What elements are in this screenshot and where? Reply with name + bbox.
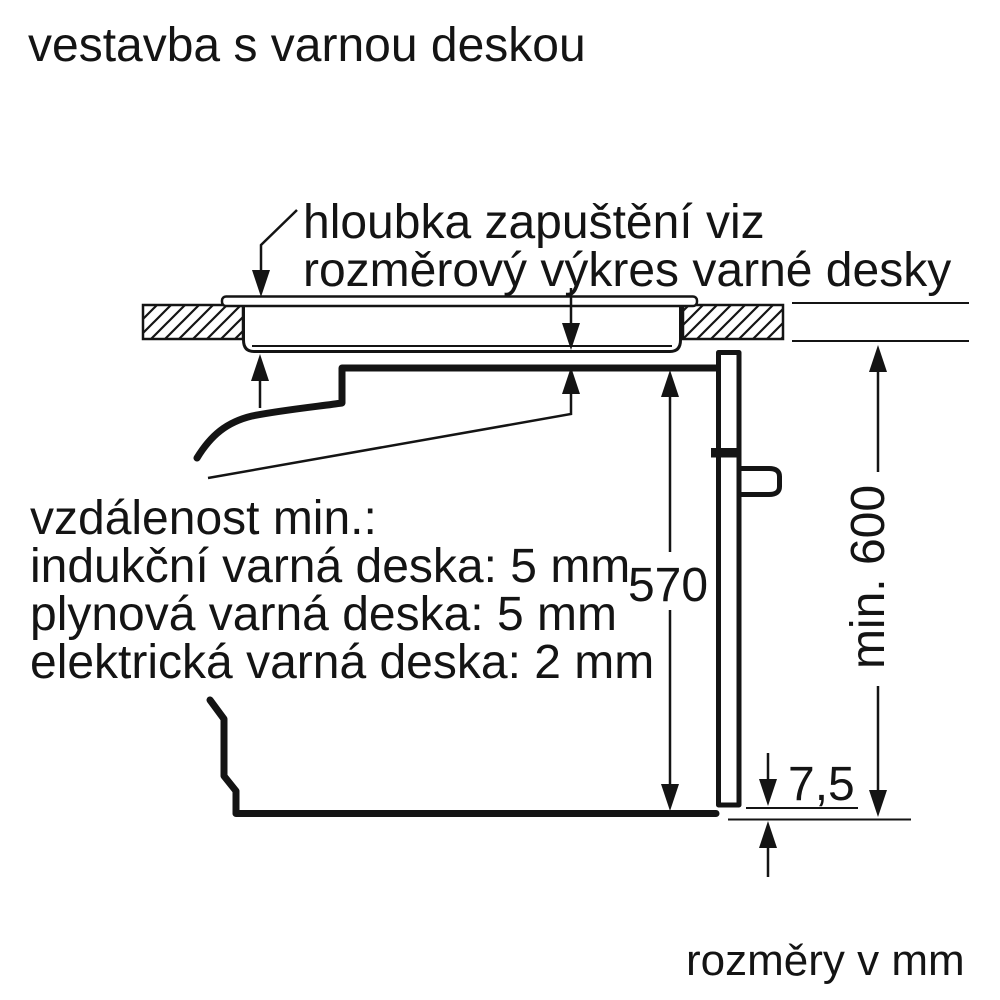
- arrow-down-icon: [661, 784, 679, 811]
- dimension-570: 570: [628, 370, 708, 811]
- installation-diagram-page: vestavba s varnou deskou hloubka zapuště…: [0, 0, 1000, 1000]
- notes-electric: elektrická varná deska: 2 mm: [30, 636, 654, 689]
- notes-heading: vzdálenost min.:: [30, 492, 377, 545]
- arrow-down-icon: [759, 779, 777, 806]
- dimension-min-600: min. 600: [842, 345, 895, 817]
- arrow-up-icon: [251, 354, 269, 381]
- callout-leader-line: [261, 210, 297, 272]
- cooktop: [222, 297, 697, 352]
- arrow-up-icon: [869, 345, 887, 372]
- units-note: rozměry v mm: [686, 936, 965, 985]
- cooktop-body: [244, 301, 681, 352]
- oven-top-outline: [197, 368, 716, 458]
- dimension-7-5: 7,5: [728, 753, 911, 877]
- notes-induction: indukční varná deska: 5 mm: [30, 540, 630, 593]
- arrow-up-icon: [661, 370, 679, 397]
- cooktop-glass-lip: [222, 297, 697, 307]
- arrow-down-icon: [252, 270, 270, 297]
- dim-75-label: 7,5: [788, 758, 855, 811]
- callout-recess-depth: hloubka zapuštění viz rozměrový výkres v…: [252, 196, 951, 297]
- oven-control-knob: [739, 469, 780, 495]
- callout-text-line1: hloubka zapuštění viz: [303, 196, 765, 249]
- callout-text-line2: rozměrový výkres varné desky: [303, 244, 951, 297]
- countertop-right-section: [683, 305, 783, 339]
- oven-left-cut-outline: [210, 700, 236, 813]
- countertop-left-section: [143, 305, 243, 339]
- oven-panel-joint: [711, 448, 740, 458]
- arrow-down-icon: [869, 790, 887, 817]
- page-title: vestavba s varnou deskou: [28, 19, 586, 72]
- clearance-notes: vzdálenost min.: indukční varná deska: 5…: [30, 492, 654, 689]
- diagram-canvas: vestavba s varnou deskou hloubka zapuště…: [0, 0, 1000, 1000]
- notes-gas: plynová varná deska: 5 mm: [30, 588, 617, 641]
- clearance-leader-line: [208, 392, 571, 478]
- dim-600-label: min. 600: [842, 485, 895, 669]
- oven-front-door-panel: [719, 353, 740, 806]
- dim-570-label: 570: [628, 559, 708, 612]
- arrow-up-icon: [759, 821, 777, 848]
